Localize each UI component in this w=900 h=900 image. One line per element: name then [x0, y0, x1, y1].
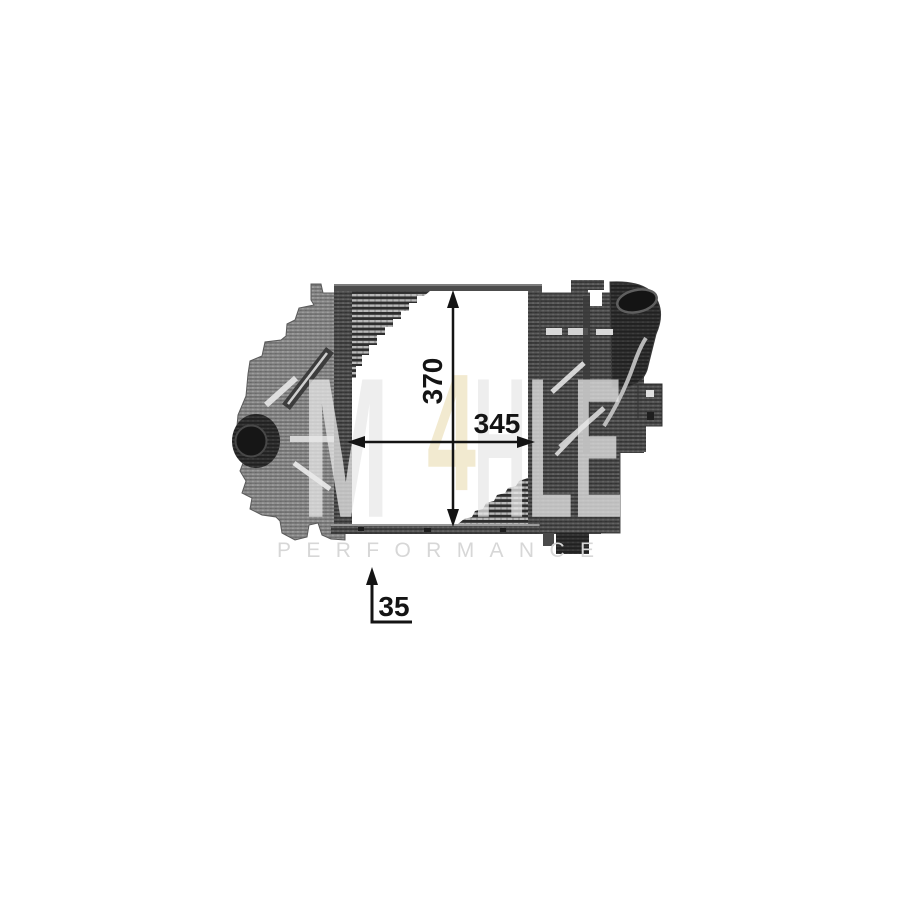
depth-dimension: 35 [366, 567, 412, 622]
width-dimension-label: 345 [474, 408, 521, 439]
left-pipe-port [236, 426, 267, 457]
watermark-brand-rest: HLE [473, 337, 623, 560]
height-dimension-label: 370 [417, 358, 448, 405]
depth-dimension-label: 35 [378, 591, 409, 622]
intercooler-technical-image: M 4 HLE PERFORMANCE 370 345 35 [0, 0, 900, 900]
product-photo-canvas: M 4 HLE PERFORMANCE 370 345 35 [0, 0, 900, 900]
arrowhead-up-icon [366, 567, 378, 585]
watermark-brand-m: M [302, 337, 389, 560]
watermark-tagline: PERFORMANCE [277, 539, 611, 562]
